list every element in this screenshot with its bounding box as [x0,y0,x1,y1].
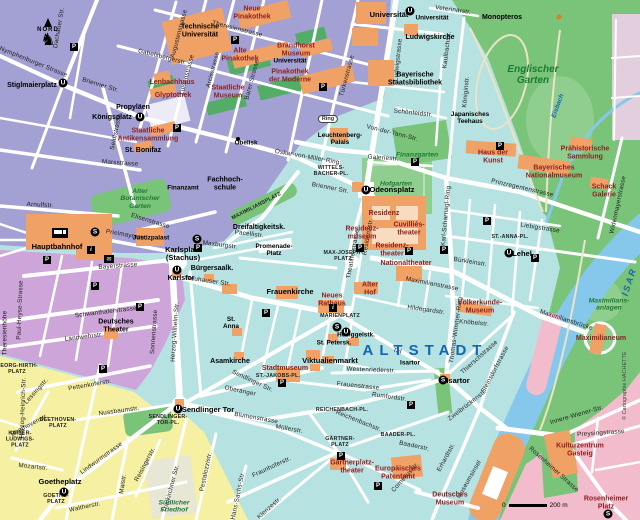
munich-city-map: StiglmaierplatzNymphenburger StrasseDach… [0,0,640,520]
map-base-graphics [0,0,640,520]
